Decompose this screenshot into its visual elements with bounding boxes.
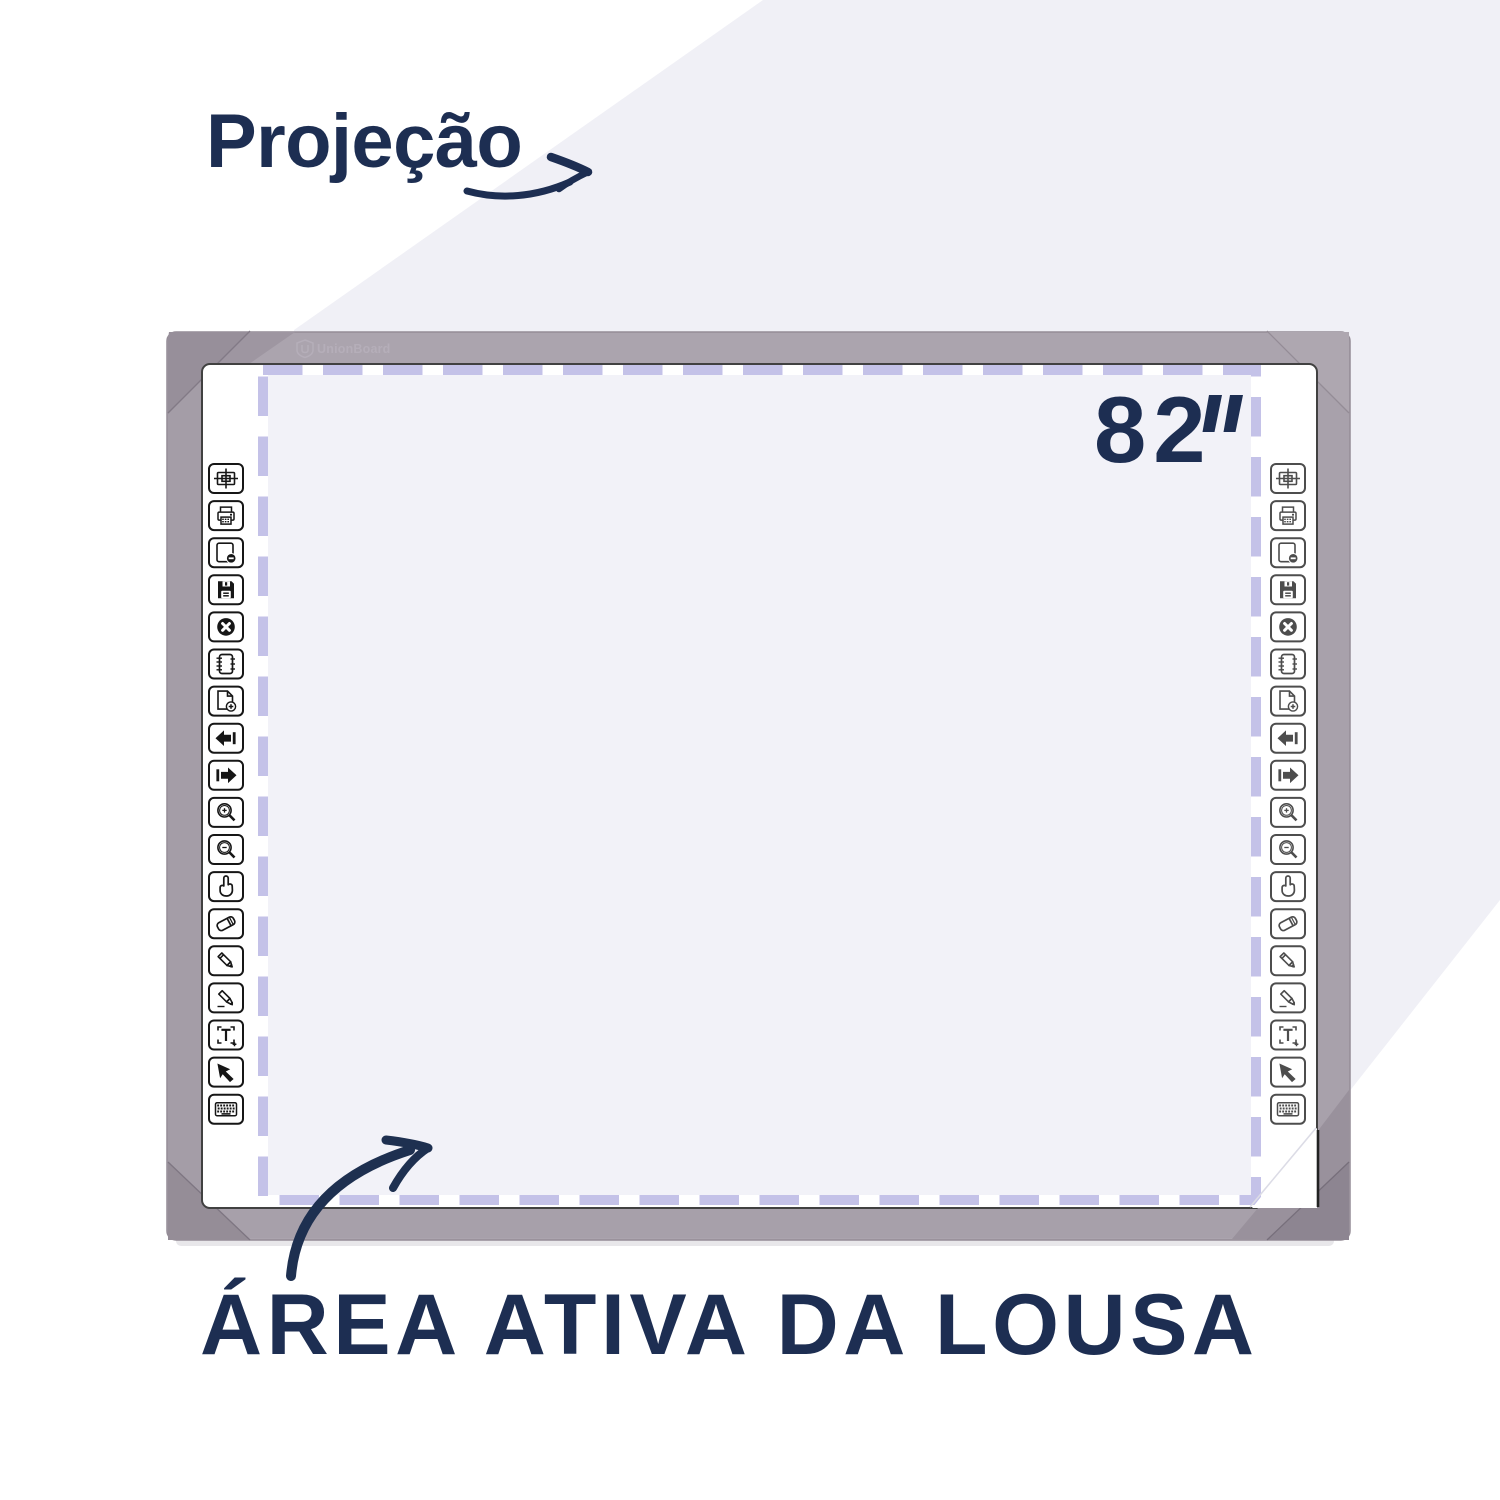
svg-text:ÁREA ATIVA DA LOUSA: ÁREA ATIVA DA LOUSA [200,1277,1259,1373]
svg-text:82: 82 [1094,377,1213,482]
svg-text:Projeção: Projeção [206,99,522,184]
svg-text:UnionBoard: UnionBoard [317,342,391,356]
